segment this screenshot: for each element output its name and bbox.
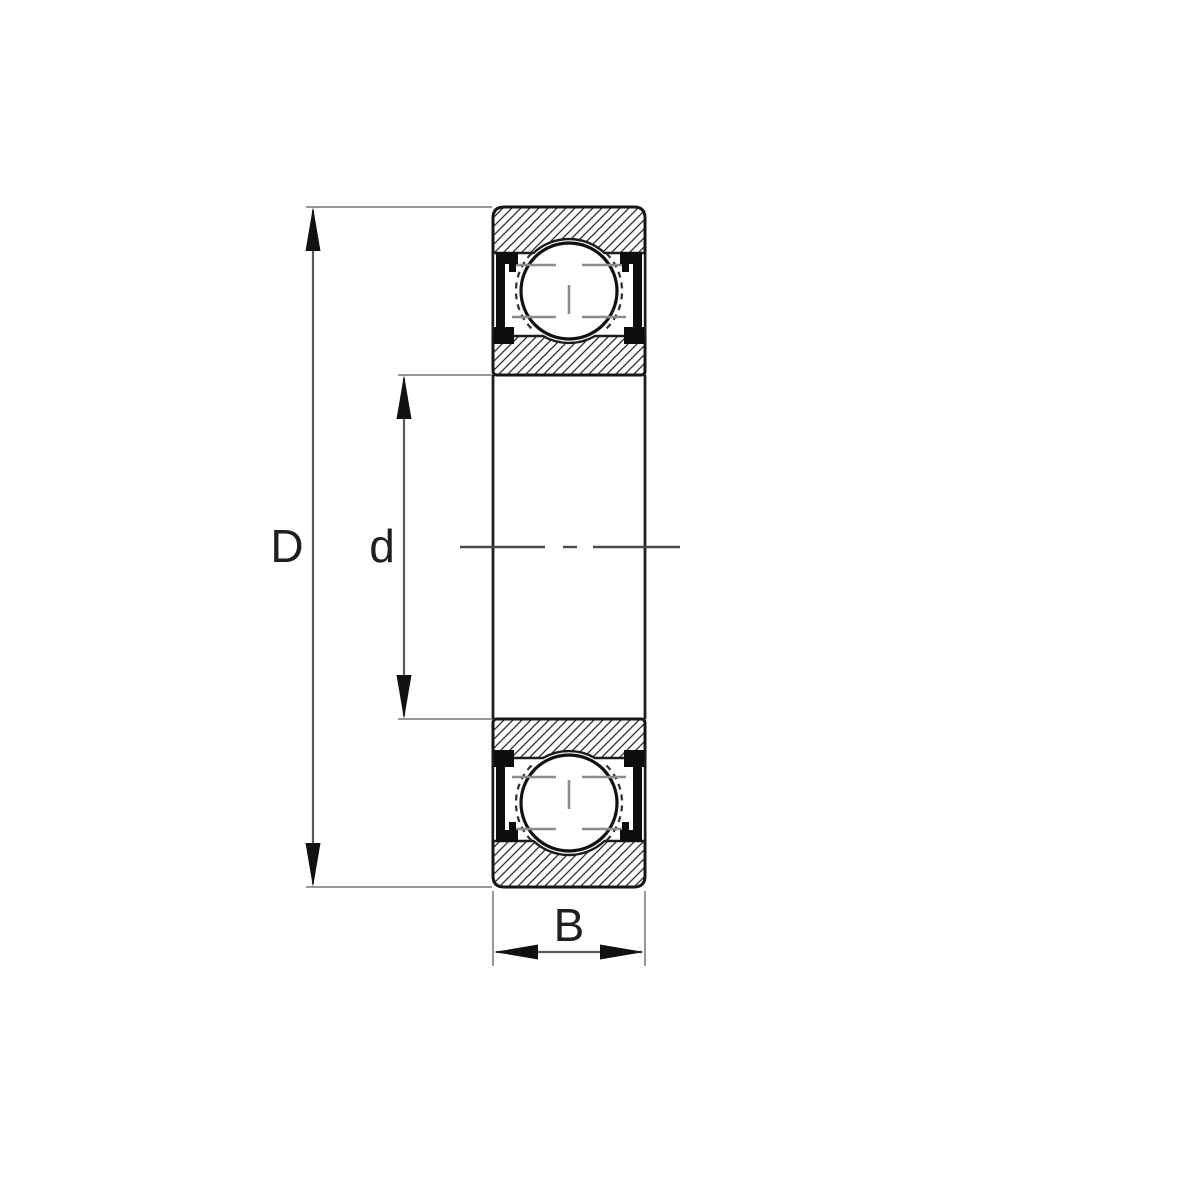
upper-bearing-section <box>493 207 645 375</box>
seal-stem <box>633 252 642 336</box>
seal-foot <box>494 327 514 344</box>
seal-hook <box>622 822 629 832</box>
seal-foot <box>494 750 514 767</box>
bearing-drawing-canvas: D d B <box>0 0 1200 1200</box>
seal-foot <box>624 750 644 767</box>
seal-stem <box>496 758 505 842</box>
seal-hook <box>509 262 516 272</box>
seal-foot <box>624 327 644 344</box>
seal-stem <box>496 252 505 336</box>
seal-hook <box>622 262 629 272</box>
drawing-background <box>0 0 1200 1200</box>
seal-stem <box>633 758 642 842</box>
bearing-cross-section-diagram: D d B <box>0 0 1200 1200</box>
seal-hook <box>509 822 516 832</box>
outer-diameter-label: D <box>270 520 303 572</box>
bore-diameter-label: d <box>369 520 395 572</box>
width-label: B <box>554 899 585 951</box>
lower-bearing-section <box>493 719 645 887</box>
